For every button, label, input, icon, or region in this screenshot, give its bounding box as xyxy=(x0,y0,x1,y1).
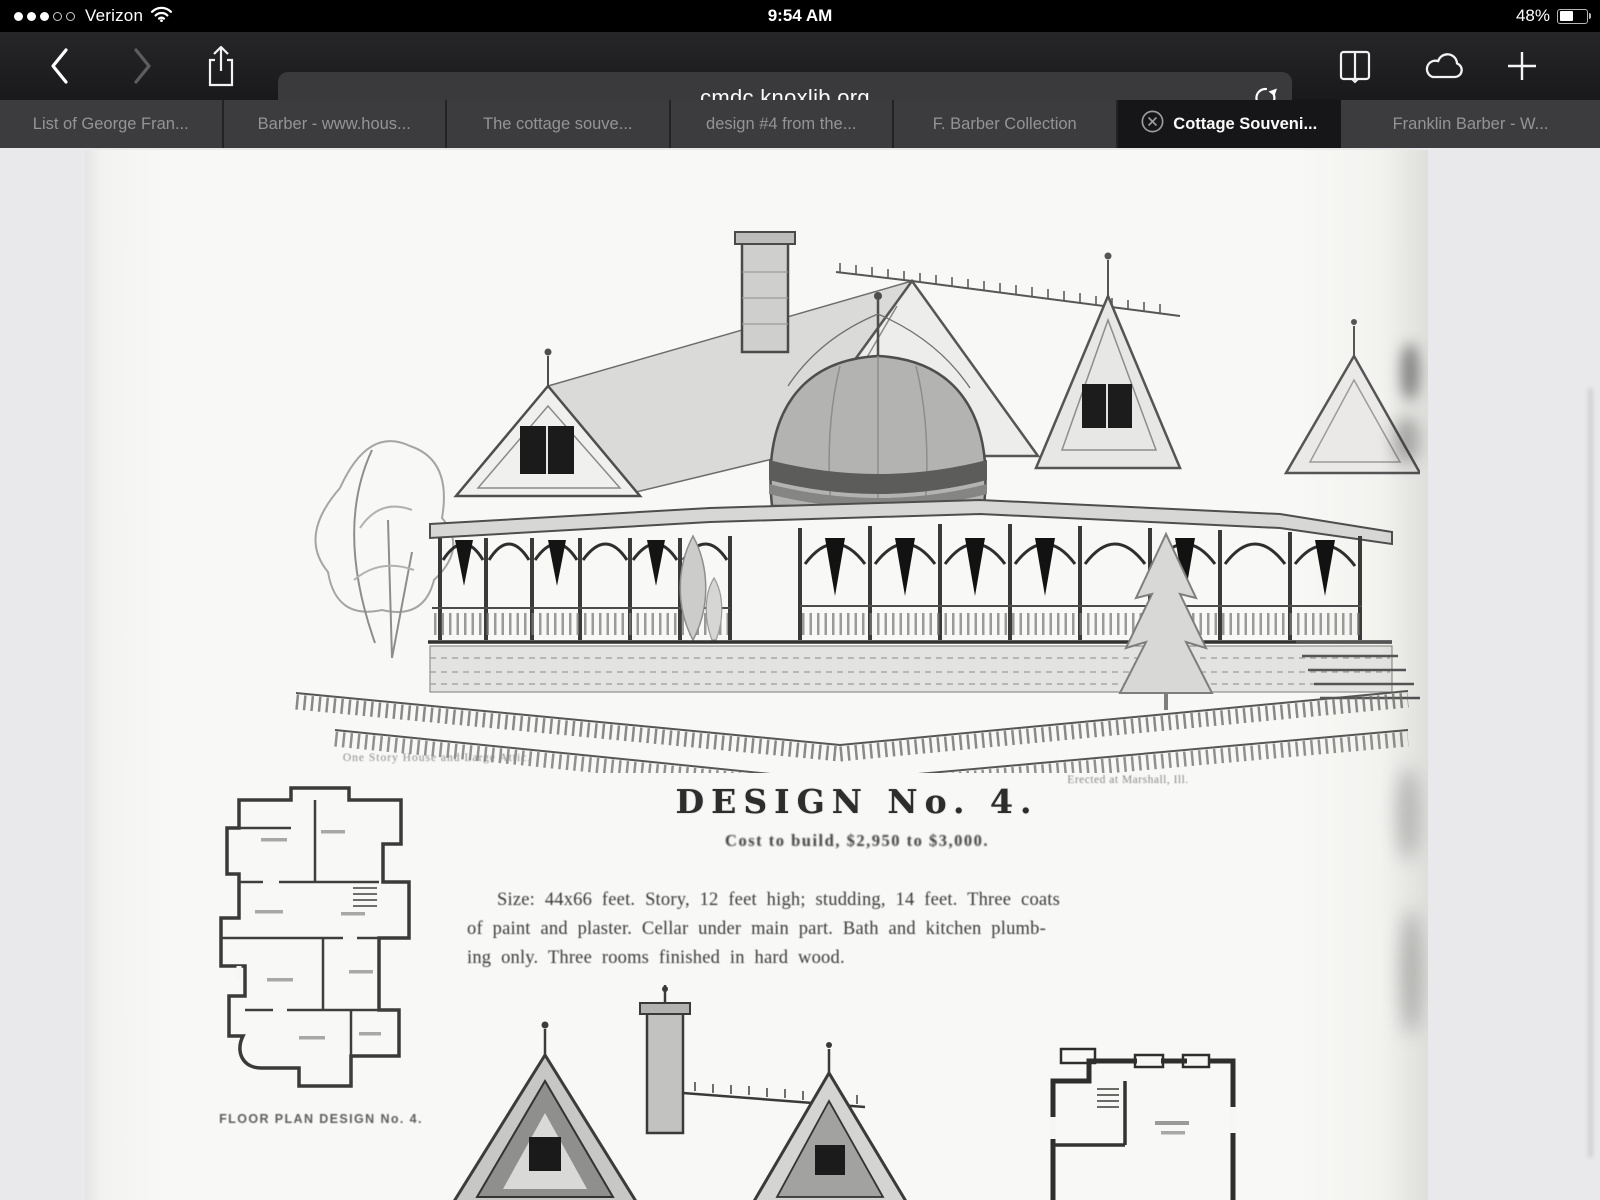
status-bar: Verizon 9:54 AM 48% xyxy=(0,0,1600,32)
scan-edge-shading xyxy=(1380,150,1428,1200)
description-line: of paint and plaster. Cellar under main … xyxy=(467,919,1277,940)
tab-cottage-souvenir[interactable]: The cottage souve... xyxy=(447,100,671,148)
share-icon xyxy=(203,43,239,89)
open-book-icon xyxy=(1336,48,1374,84)
tab-label: List of George Fran... xyxy=(33,115,189,134)
share-button[interactable] xyxy=(198,32,244,100)
scan-artifact xyxy=(1401,910,1421,1035)
tab-bar: List of George Fran... Barber - www.hous… xyxy=(0,100,1600,148)
cloud-icon xyxy=(1422,51,1466,81)
chevron-right-icon xyxy=(130,46,154,86)
description-line: ing only. Three rooms finished in hard w… xyxy=(467,948,1277,969)
tab-list-of-george-franklin[interactable]: List of George Fran... xyxy=(0,100,224,148)
description-line: Size: 44x66 feet. Story, 12 feet high; s… xyxy=(467,890,1307,911)
tab-franklin-barber[interactable]: Franklin Barber - W... xyxy=(1341,100,1600,148)
tab-label: Barber - www.hous... xyxy=(258,115,411,134)
clock: 9:54 AM xyxy=(0,0,1600,32)
page-edge-streak xyxy=(1588,388,1593,1158)
close-tab-icon[interactable] xyxy=(1141,110,1164,138)
tab-design-4[interactable]: design #4 from the... xyxy=(671,100,895,148)
scan-artifact xyxy=(1394,416,1419,464)
second-floor-plan-drawing xyxy=(1037,1045,1247,1200)
plan-top-caption: One Story House and Large Attic. xyxy=(297,752,577,764)
browser-toolbar: cmdc.knoxlib.org xyxy=(0,32,1600,101)
icloud-tabs-button[interactable] xyxy=(1416,32,1472,100)
safari-browser-window: Verizon 9:54 AM 48% xyxy=(0,0,1600,1200)
scan-artifact xyxy=(1397,768,1419,860)
back-button[interactable] xyxy=(38,32,82,100)
scan-edge-shading xyxy=(85,150,101,1200)
bookmarks-button[interactable] xyxy=(1330,32,1380,100)
floor-plan-label: FLOOR PLAN DESIGN No. 4. xyxy=(191,1112,451,1126)
tab-f-barber-collection[interactable]: F. Barber Collection xyxy=(894,100,1118,148)
forward-button[interactable] xyxy=(120,32,164,100)
web-content: One Story House and Large Attic. Erected… xyxy=(0,148,1600,1200)
plus-icon xyxy=(1505,49,1539,83)
scanned-catalog-page: One Story House and Large Attic. Erected… xyxy=(85,150,1428,1200)
tab-label: Franklin Barber - W... xyxy=(1393,115,1549,134)
battery-icon xyxy=(1557,9,1588,24)
cost-line: Cost to build, $2,950 to $3,000. xyxy=(557,831,1157,851)
tab-label: F. Barber Collection xyxy=(933,115,1077,134)
chevron-left-icon xyxy=(48,46,72,86)
new-tab-button[interactable] xyxy=(1498,32,1546,100)
first-floor-plan-drawing xyxy=(203,770,433,1105)
status-right-cluster: 48% xyxy=(1516,0,1588,32)
tab-label: The cottage souve... xyxy=(483,115,633,134)
design-title: DESIGN No. 4. xyxy=(557,782,1157,821)
tab-label: Cottage Souveni... xyxy=(1173,115,1317,134)
battery-percent-label: 48% xyxy=(1516,6,1550,26)
second-house-illustration xyxy=(425,985,955,1200)
tab-cottage-souvenir-active[interactable]: Cottage Souveni... xyxy=(1118,100,1342,148)
victorian-house-illustration xyxy=(280,188,1420,773)
tab-label: design #4 from the... xyxy=(706,115,856,134)
scan-artifact xyxy=(1401,343,1419,401)
tab-barber-houseplans[interactable]: Barber - www.hous... xyxy=(224,100,448,148)
